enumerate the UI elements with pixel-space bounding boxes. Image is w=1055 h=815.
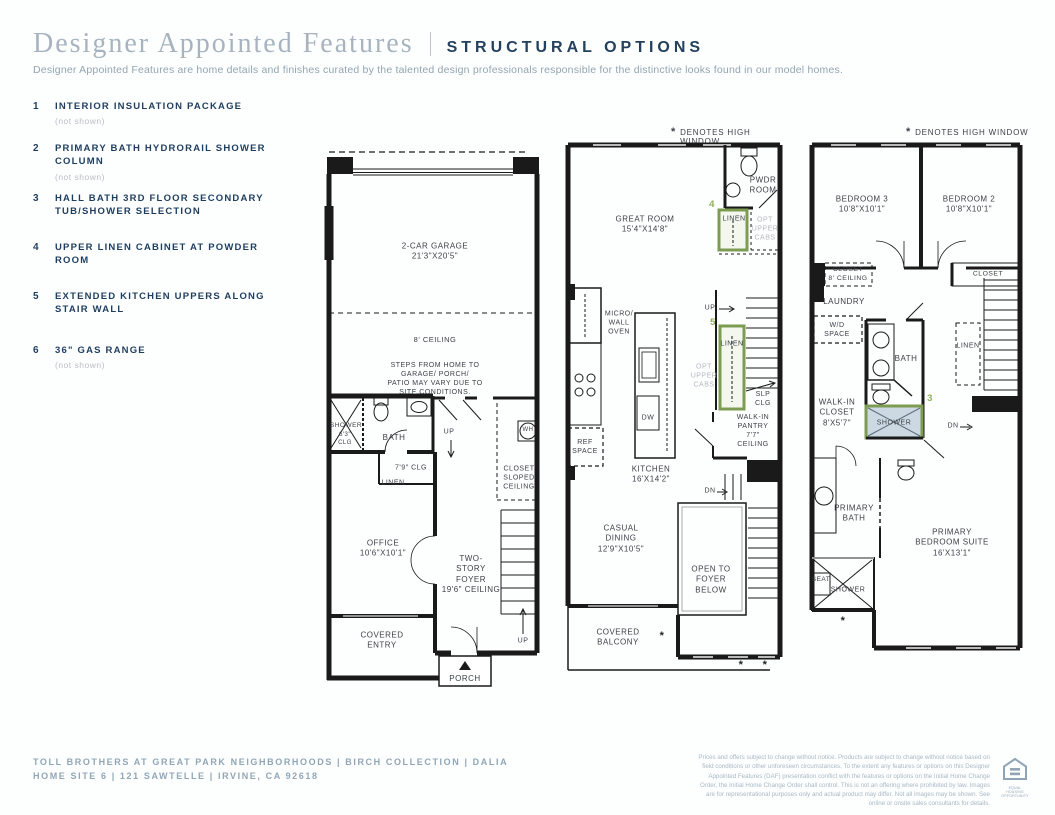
label-linen-option4: LINEN (722, 214, 745, 223)
third-floor-plan: * DENOTES HIGH WINDOW (806, 128, 1036, 676)
room-label-pantry: WALK-IN PANTRY 7'7" CEILING (733, 413, 773, 449)
feature-number: 3 (33, 192, 45, 219)
feature-note: (not shown) (55, 116, 280, 128)
label-wd-space: W/D SPACE (824, 321, 850, 339)
feature-number: 1 (33, 100, 45, 128)
feature-item-6: 6 36" GAS RANGE (not shown) (33, 344, 280, 372)
feature-title: 36" GAS RANGE (55, 345, 146, 356)
feature-title: EXTENDED KITCHEN UPPERS ALONG STAIR WALL (55, 291, 265, 315)
label-closet: CLOSET (973, 271, 1003, 280)
label-ref-space: REF SPACE (572, 438, 598, 456)
high-window-asterisk: * (763, 658, 768, 672)
label-up-stairs: UP (518, 636, 529, 645)
option-number-4: 4 (709, 199, 715, 211)
label-linen: LINEN (956, 341, 979, 350)
label-closet-sloped: CLOSET SLOPED CEILING (503, 464, 535, 491)
room-label-pwdr: PWDR ROOM (750, 176, 777, 197)
equal-housing-caption: EQUAL HOUSING OPPORTUNITY (1000, 786, 1030, 799)
label-dn-stairs: DN (947, 421, 958, 430)
footer-community-line: TOLL BROTHERS AT GREAT PARK NEIGHBORHOOD… (33, 757, 508, 767)
room-label-porch: PORCH (449, 674, 480, 684)
label-linen-option5: LINEN (720, 339, 743, 348)
label-dn-stairs: DN (704, 486, 715, 495)
label-up-door: UP (444, 427, 455, 436)
title-divider (430, 32, 431, 56)
label-open-to-foyer: OPEN TO FOYER BELOW (691, 564, 730, 595)
label-seat: SEAT (812, 576, 831, 584)
feature-item-4: 4 UPPER LINEN CABINET AT POWDER ROOM (33, 241, 280, 268)
high-window-asterisk: * (841, 614, 846, 628)
label-micro-wall-oven: MICRO/ WALL OVEN (605, 309, 633, 336)
feature-item-2: 2 PRIMARY BATH HYDRORAIL SHOWER COLUMN (… (33, 142, 280, 183)
feature-title: UPPER LINEN CABINET AT POWDER ROOM (55, 242, 258, 266)
equal-housing-logo: EQUAL HOUSING OPPORTUNITY (1000, 757, 1030, 799)
feature-item-5: 5 EXTENDED KITCHEN UPPERS ALONG STAIR WA… (33, 290, 280, 317)
feature-number: 6 (33, 344, 45, 372)
room-label-covered-entry: COVERED ENTRY (360, 631, 403, 652)
high-window-asterisk: * (660, 629, 665, 643)
room-label-primary-suite: PRIMARY BEDROOM SUITE 16'X13'1" (915, 527, 989, 558)
label-linen: LINEN (381, 478, 404, 487)
label-shower-option: SHOWER (877, 418, 912, 427)
feature-item-3: 3 HALL BATH 3RD FLOOR SECONDARY TUB/SHOW… (33, 192, 280, 219)
room-label-foyer: TWO- STORY FOYER 19'6" CEILING (442, 554, 500, 596)
page-subtitle-caps: STRUCTURAL OPTIONS (447, 39, 704, 57)
label-79-clg: 7'9" CLG (395, 463, 427, 472)
high-window-asterisk: * (739, 658, 744, 672)
room-label-bedroom2: BEDROOM 2 10'8"X10'1" (943, 195, 996, 216)
room-label-laundry: LAUNDRY (823, 297, 865, 307)
page-title: Designer Appointed Features (33, 28, 414, 60)
label-opt-upper-cabs-4: OPT UPPER CABS (752, 215, 779, 242)
feature-note: (not shown) (55, 360, 280, 372)
label-shower: SHOWER (330, 422, 362, 430)
label-shower: SHOWER (831, 585, 866, 594)
room-label-bath: BATH (895, 354, 918, 364)
label-opt-upper-cabs-5: OPT UPPER CABS (691, 362, 718, 389)
room-label-walkin-closet: WALK-IN CLOSET 8'X5'7" (819, 397, 856, 428)
option-number-5: 5 (710, 317, 716, 329)
label-steps-note: STEPS FROM HOME TO GARAGE/ PORCH/ PATIO … (380, 361, 490, 397)
label-shower-clg: 6'3" CLG (338, 432, 352, 448)
room-label-bedroom3: BEDROOM 3 10'8"X10'1" (836, 195, 889, 216)
room-label-kitchen: KITCHEN 16'X14'2" (632, 465, 671, 486)
footer-address-line: HOME SITE 6 | 121 SAWTELLE | IRVINE, CA … (33, 771, 319, 781)
first-floor-plan: 2-CAR GARAGE 21'3"X20'5" 8' CEILING STEP… (323, 148, 545, 692)
option-number-3: 3 (927, 393, 933, 405)
room-label-primary-bath: PRIMARY BATH (834, 504, 874, 525)
header: Designer Appointed Features STRUCTURAL O… (33, 28, 704, 60)
label-8ft-ceiling: 8' CEILING (414, 335, 457, 345)
footer-disclaimer: Prices and offers subject to change with… (690, 753, 990, 809)
feature-title: HALL BATH 3RD FLOOR SECONDARY TUB/SHOWER… (55, 193, 264, 217)
label-slp-clg: SLP CLG (748, 390, 778, 408)
feature-number: 2 (33, 142, 45, 183)
room-label-garage: 2-CAR GARAGE 21'3"X20'5" (402, 242, 468, 263)
feature-item-1: 1 INTERIOR INSULATION PACKAGE (not shown… (33, 100, 280, 128)
room-label-casual-dining: CASUAL DINING 12'9"X10'5" (598, 523, 644, 554)
feature-number: 4 (33, 241, 45, 268)
feature-number: 5 (33, 290, 45, 317)
label-water-heater: WH (523, 427, 534, 435)
second-floor-plan: * DENOTES HIGH WINDOW (563, 128, 793, 676)
feature-title: PRIMARY BATH HYDRORAIL SHOWER COLUMN (55, 143, 266, 167)
room-label-covered-balcony: COVERED BALCONY (596, 628, 639, 649)
label-up-stairs: UP (705, 303, 716, 312)
equal-housing-icon (1002, 757, 1028, 781)
header-description: Designer Appointed Features are home det… (33, 64, 843, 76)
feature-title: INTERIOR INSULATION PACKAGE (55, 101, 242, 112)
room-label-office: OFFICE 10'6"X10'1" (360, 539, 406, 560)
room-label-bath: BATH (383, 433, 406, 443)
room-label-great-room: GREAT ROOM 15'4"X14'8" (616, 215, 675, 236)
feature-note: (not shown) (55, 172, 280, 184)
first-floor-walls (323, 148, 545, 692)
daf-structural-options-sheet: Designer Appointed Features STRUCTURAL O… (0, 0, 1055, 815)
label-dw: DW (642, 413, 655, 422)
label-closet-8ft: CLOSET 8' CEILING (828, 266, 867, 284)
